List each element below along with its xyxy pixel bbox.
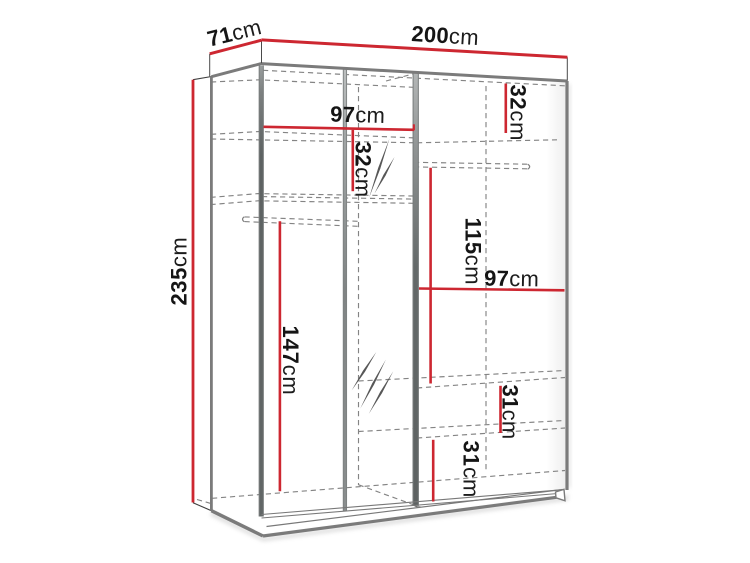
svg-text:235cm: 235cm	[166, 237, 191, 306]
svg-text:115cm: 115cm	[461, 218, 486, 286]
svg-text:97cm: 97cm	[330, 102, 386, 128]
svg-text:97cm: 97cm	[484, 266, 539, 292]
svg-text:31cm: 31cm	[459, 441, 484, 499]
svg-text:200cm: 200cm	[411, 21, 480, 50]
svg-text:147cm: 147cm	[278, 326, 303, 396]
svg-text:32cm: 32cm	[506, 85, 531, 142]
svg-text:32cm: 32cm	[351, 142, 376, 198]
svg-text:31cm: 31cm	[498, 385, 523, 440]
